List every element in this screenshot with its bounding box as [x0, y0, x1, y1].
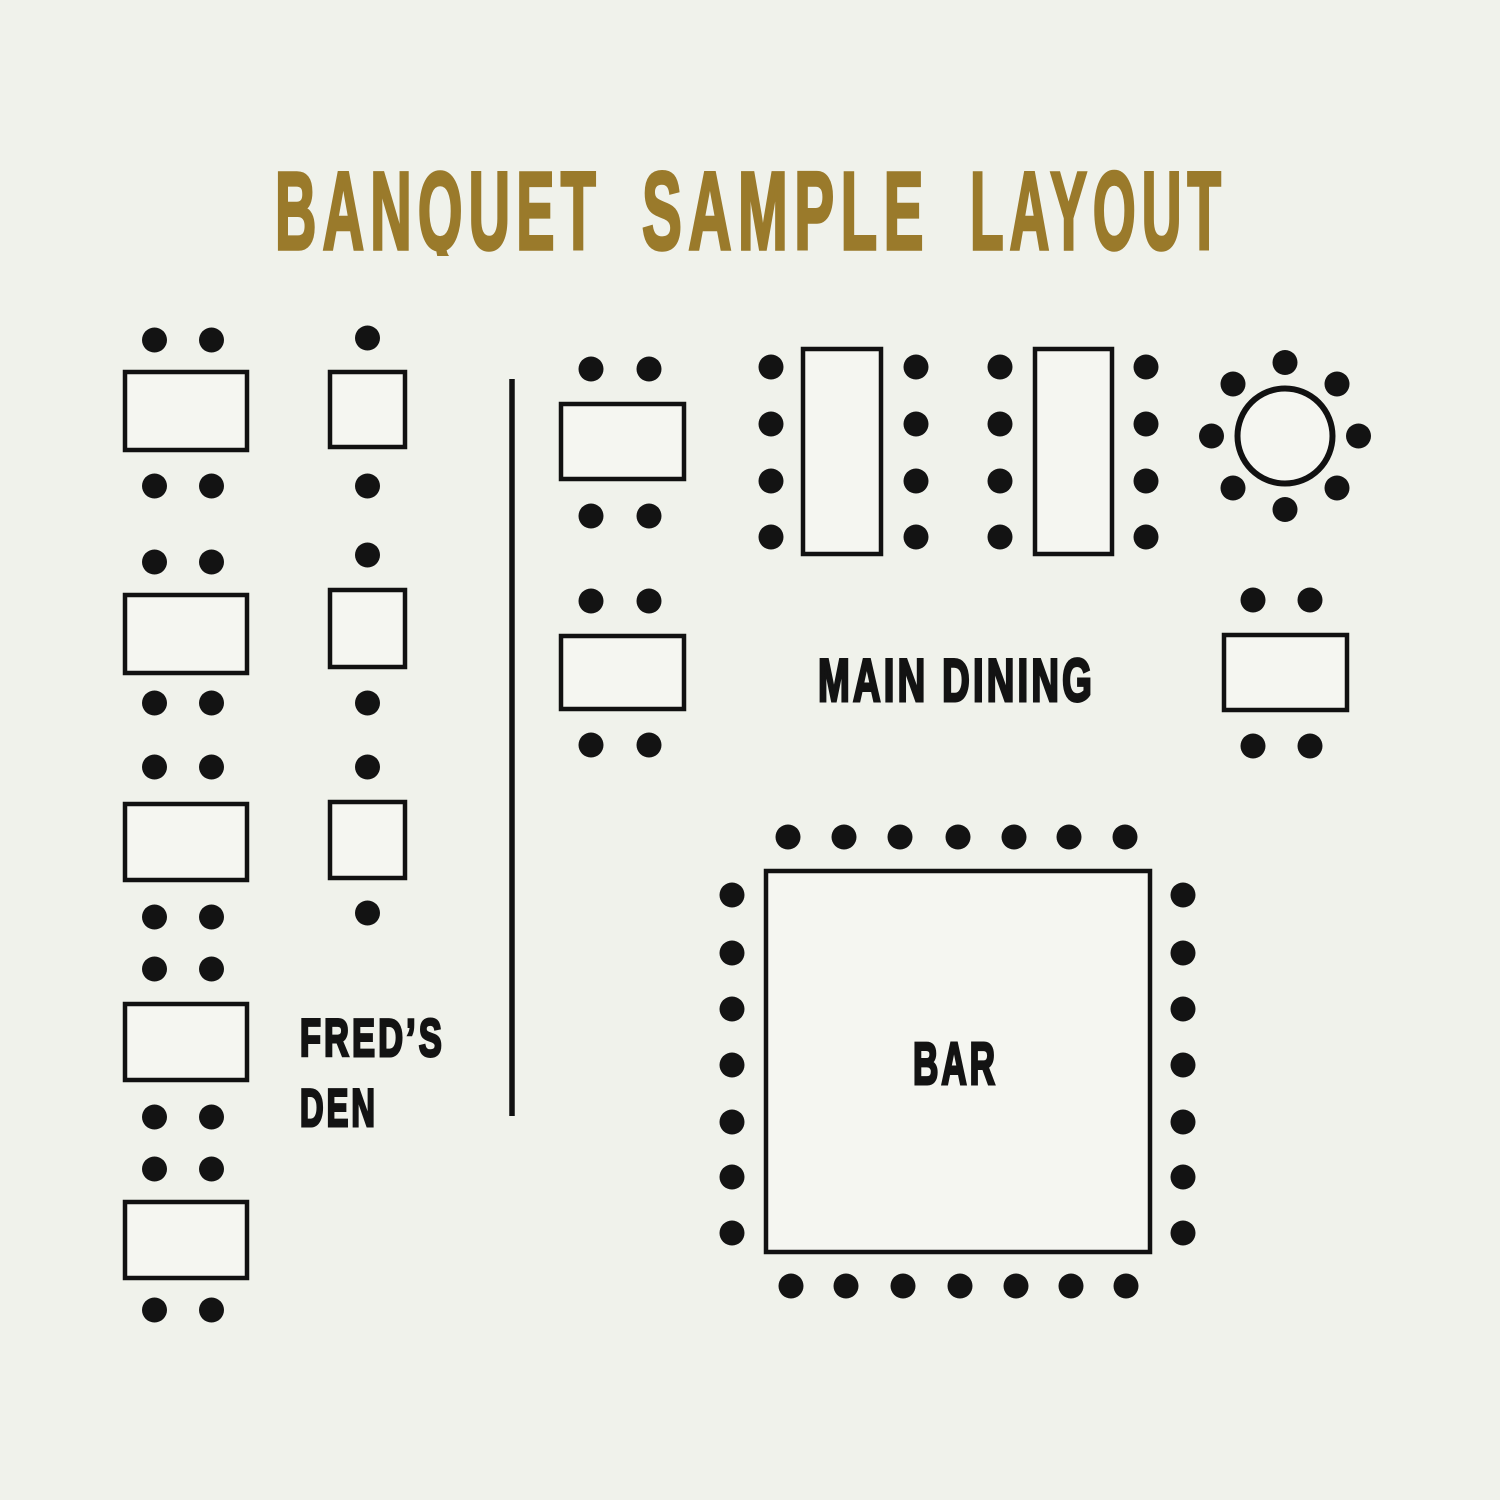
- svg-text:DEN: DEN: [300, 1079, 378, 1138]
- svg-text:SAMPLE: SAMPLE: [642, 150, 930, 273]
- svg-text:MAIN DINING: MAIN DINING: [818, 647, 1095, 714]
- svg-text:LAYOUT: LAYOUT: [970, 150, 1227, 273]
- svg-text:FRED’S: FRED’S: [300, 1009, 445, 1068]
- svg-text:BAR: BAR: [913, 1031, 998, 1097]
- svg-text:BANQUET: BANQUET: [275, 150, 602, 273]
